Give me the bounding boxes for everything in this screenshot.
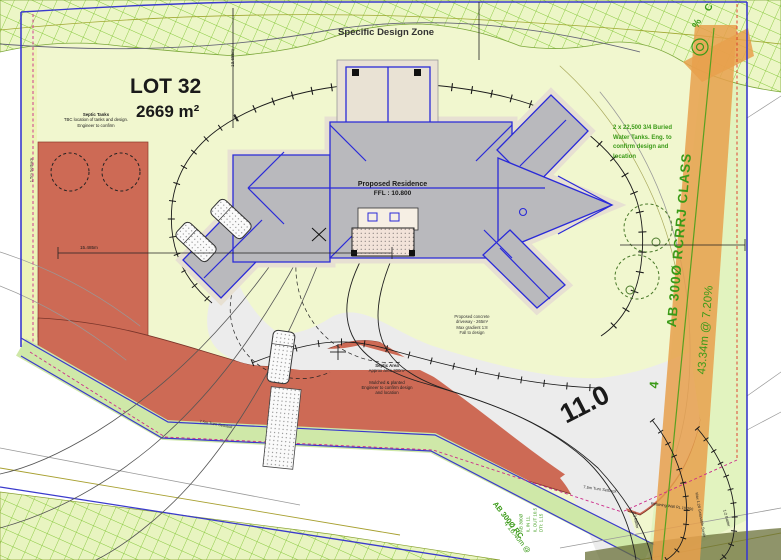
driveway-note: Proposed concrete driveway - 265m² Max g… <box>430 314 514 335</box>
pit-data-block: AB 300Ø IL IN 11. IL OUT 10.5 DTI: 1.15 <box>519 508 546 532</box>
pipe-class-number: 4 <box>647 381 663 389</box>
setback-left-label: 1.5m Setback <box>29 158 34 182</box>
septic-area-note: Septic Area Approx area 300m² Mulched & … <box>345 363 429 396</box>
specific-design-zone-label: Specific Design Zone <box>338 27 434 39</box>
lot-number: LOT 32 <box>130 74 201 100</box>
deck <box>351 208 418 256</box>
residence-label: Proposed Residence FFL : 10.800 <box>335 181 450 198</box>
water-tanks-note: 2 x 22,500 3/4 Buried Water Tanks. Eng. … <box>613 124 672 162</box>
lot-area: 2669 m² <box>136 101 199 122</box>
site-plan-canvas <box>0 0 781 560</box>
residence-ffl: FFL : 10.800 <box>335 190 450 198</box>
dimension-top: 13.685m <box>230 49 236 67</box>
site-plan-drawing: Specific Design Zone LOT 32 2669 m² Sept… <box>0 0 781 560</box>
septic-tanks-note: Septic Tanks TBC location of tanks and d… <box>48 112 144 128</box>
dimension-left: 15.485m <box>80 245 98 251</box>
